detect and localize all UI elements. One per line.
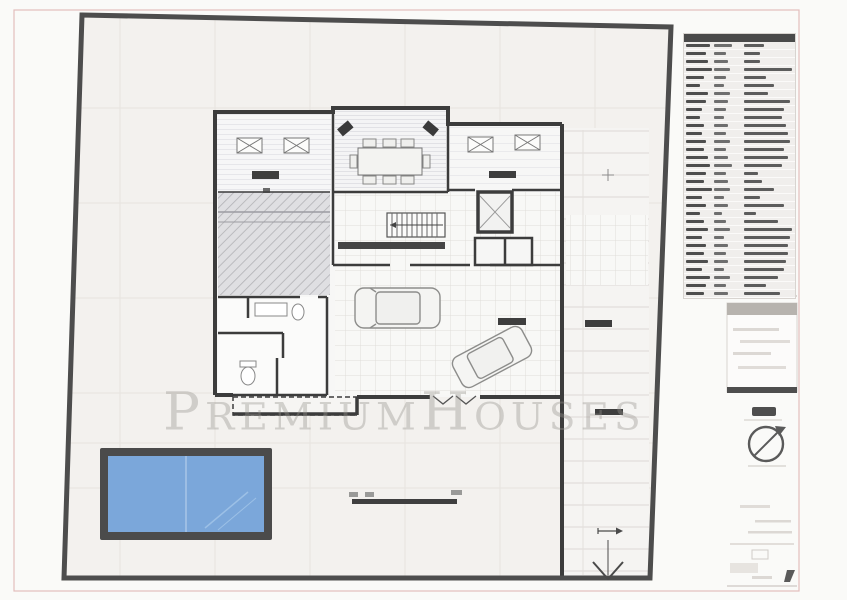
north-arrow-icon xyxy=(748,426,786,466)
schedule-cell-text xyxy=(744,124,786,127)
bench-bar-3 xyxy=(595,409,623,415)
schedule-cell-text xyxy=(686,276,710,279)
schedule-row xyxy=(684,194,795,202)
schedule-cell-text xyxy=(714,244,728,247)
schedule-row xyxy=(684,258,795,266)
schedule-cell-text xyxy=(744,92,768,95)
car-parked xyxy=(355,288,440,328)
schedule-cell-text xyxy=(714,156,728,159)
schedule-cell-text xyxy=(686,244,706,247)
schedule-row xyxy=(684,186,795,194)
schedule-cell-text xyxy=(744,44,764,47)
schedule-cell-text xyxy=(686,92,708,95)
schedule-cell-text xyxy=(714,276,730,279)
schedule-cell-text xyxy=(744,228,792,231)
schedule-cell-text xyxy=(714,180,728,183)
schedule-cell-text xyxy=(714,84,724,87)
schedule-cell-text xyxy=(744,204,784,207)
schedule-cell-text xyxy=(686,60,708,63)
schedule-cell-text xyxy=(744,172,758,175)
elevator-shaft xyxy=(478,192,512,232)
schedule-cell-text xyxy=(744,148,784,151)
schedule-cell-text xyxy=(714,108,726,111)
schedule-cell-text xyxy=(714,68,730,71)
schedule-cell-text xyxy=(714,92,730,95)
living-room-floor xyxy=(217,114,331,192)
schedule-cell-text xyxy=(714,252,726,255)
schedule-cell-text xyxy=(714,100,728,103)
bedroom-shelf xyxy=(489,171,516,178)
bedroom-skylight-right xyxy=(515,135,540,150)
tv-console xyxy=(252,171,279,179)
schedule-cell-text xyxy=(714,236,724,239)
schedule-row xyxy=(684,162,795,170)
schedule-cell-text xyxy=(686,108,702,111)
detail-panel xyxy=(727,303,797,393)
schedule-cell-text xyxy=(744,268,784,271)
schedule-cell-text xyxy=(714,140,730,143)
schedule-row xyxy=(684,114,795,122)
schedule-cell-text xyxy=(686,292,704,295)
schedule-cell-text xyxy=(744,276,778,279)
schedule-cell-text xyxy=(686,268,702,271)
schedule-row xyxy=(684,50,795,58)
ramp-hatched-area xyxy=(218,192,330,295)
schedule-cell-text xyxy=(744,260,786,263)
schedule-cell-text xyxy=(686,52,706,55)
schedule-cell-text xyxy=(744,156,788,159)
schedule-cell-text xyxy=(686,148,704,151)
title-block-logo xyxy=(784,570,795,582)
bedroom-skylight-left xyxy=(468,137,493,152)
schedule-row xyxy=(684,106,795,114)
schedule-row xyxy=(684,290,795,298)
schedule-cell-text xyxy=(744,244,788,247)
schedule-cell-text xyxy=(714,124,728,127)
schedule-cell-text xyxy=(714,116,724,119)
schedule-cell-text xyxy=(686,132,702,135)
schedule-cell-text xyxy=(744,76,766,79)
schedule-cell-text xyxy=(714,204,728,207)
schedule-cell-text xyxy=(686,252,704,255)
schedule-cell-text xyxy=(744,292,780,295)
schedule-cell-text xyxy=(686,284,706,287)
schedule-cell-text xyxy=(744,60,760,63)
schedule-cell-text xyxy=(714,60,728,63)
living-skylight-left xyxy=(237,138,262,153)
schedule-row xyxy=(684,234,795,242)
schedule-row xyxy=(684,146,795,154)
schedule-cell-text xyxy=(714,196,724,199)
schedule-cell-text xyxy=(744,236,790,239)
schedule-cell-text xyxy=(744,180,762,183)
schedule-row xyxy=(684,282,795,290)
schedule-row xyxy=(684,266,795,274)
schedule-cell-text xyxy=(744,220,778,223)
schedule-cell-text xyxy=(744,108,784,111)
schedule-cell-text xyxy=(744,52,760,55)
schedule-cell-text xyxy=(686,180,704,183)
schedule-row xyxy=(684,98,795,106)
kitchen-counter xyxy=(338,242,445,249)
schedule-cell-text xyxy=(714,164,732,167)
bench-bar-1 xyxy=(498,318,526,325)
schedule-row xyxy=(684,154,795,162)
schedule-row xyxy=(684,242,795,250)
schedule-cell-text xyxy=(714,132,726,135)
staircase xyxy=(387,213,445,237)
schedule-cell-text xyxy=(686,84,700,87)
schedule-cell-text xyxy=(686,204,706,207)
schedule-cell-text xyxy=(686,156,708,159)
drawing-sheet: PremiumHouses xyxy=(0,0,847,600)
schedule-cell-text xyxy=(686,44,710,47)
bedroom-floor xyxy=(450,126,560,188)
scale-marker xyxy=(752,407,776,416)
schedule-cell-text xyxy=(744,116,782,119)
schedule-cell-text xyxy=(686,164,710,167)
schedule-cell-text xyxy=(744,252,788,255)
schedule-row xyxy=(684,226,795,234)
schedule-cell-text xyxy=(686,116,700,119)
schedule-cell-text xyxy=(686,228,708,231)
schedule-row xyxy=(684,74,795,82)
schedule-cell-text xyxy=(714,172,726,175)
schedule-cell-text xyxy=(714,148,726,151)
schedule-cell-text xyxy=(686,220,704,223)
schedule-cell-text xyxy=(744,164,782,167)
living-skylight-right xyxy=(284,138,309,153)
entry-porch xyxy=(233,397,357,415)
schedule-row xyxy=(684,178,795,186)
schedule-cell-text xyxy=(744,132,788,135)
schedule-row xyxy=(684,202,795,210)
schedule-cell-text xyxy=(714,292,728,295)
schedule-cell-text xyxy=(714,188,730,191)
schedule-cell-text xyxy=(686,236,702,239)
schedule-row xyxy=(684,42,795,50)
schedule-row xyxy=(684,66,795,74)
schedule-row xyxy=(684,122,795,130)
schedule-row xyxy=(684,82,795,90)
schedule-cell-text xyxy=(714,268,724,271)
schedule-cell-text xyxy=(714,260,728,263)
schedule-cell-text xyxy=(744,140,790,143)
schedule-row xyxy=(684,170,795,178)
schedule-cell-text xyxy=(744,68,792,71)
pantry-closets xyxy=(475,238,532,265)
schedule-cell-text xyxy=(744,196,760,199)
schedule-cell-text xyxy=(686,172,706,175)
schedule-row xyxy=(684,210,795,218)
schedule-cell-text xyxy=(714,228,730,231)
schedule-cell-text xyxy=(686,196,702,199)
schedule-row xyxy=(684,218,795,226)
schedule-cell-text xyxy=(686,124,704,127)
schedule-cell-text xyxy=(686,260,708,263)
schedule-header-row xyxy=(684,34,795,42)
side-walkway xyxy=(564,128,649,578)
schedule-cell-text xyxy=(686,76,704,79)
schedule-cell-text xyxy=(714,44,732,47)
schedule-row xyxy=(684,138,795,146)
schedule-cell-text xyxy=(744,284,766,287)
schedule-cell-text xyxy=(744,84,774,87)
schedule-cell-text xyxy=(714,220,726,223)
schedule-row xyxy=(684,58,795,66)
surface-schedule-table xyxy=(683,33,796,299)
schedule-cell-text xyxy=(714,212,722,215)
title-block xyxy=(727,505,797,586)
schedule-row xyxy=(684,130,795,138)
schedule-cell-text xyxy=(744,212,756,215)
swimming-pool xyxy=(100,448,272,540)
schedule-cell-text xyxy=(714,52,726,55)
schedule-row xyxy=(684,90,795,98)
schedule-row xyxy=(684,274,795,282)
schedule-cell-text xyxy=(714,284,726,287)
schedule-row xyxy=(684,250,795,258)
schedule-cell-text xyxy=(686,140,706,143)
schedule-cell-text xyxy=(686,100,706,103)
schedule-cell-text xyxy=(686,188,712,191)
schedule-cell-text xyxy=(686,68,712,71)
bench-bar-2 xyxy=(585,320,612,327)
schedule-cell-text xyxy=(744,100,790,103)
schedule-cell-text xyxy=(744,188,774,191)
schedule-cell-text xyxy=(686,212,700,215)
schedule-cell-text xyxy=(714,76,726,79)
